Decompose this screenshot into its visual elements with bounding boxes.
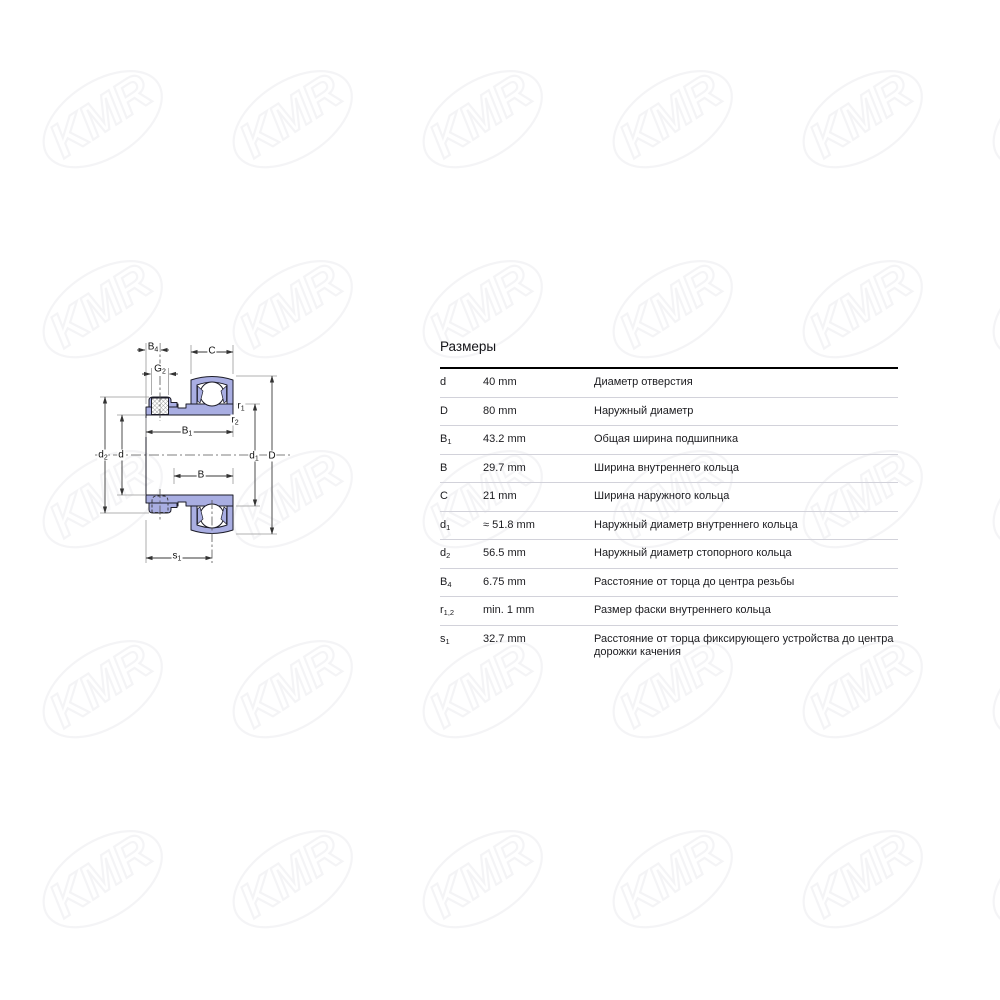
label-G2: G2 xyxy=(153,364,167,375)
dim-value: 40 mm xyxy=(483,376,594,390)
dim-symbol: B1 xyxy=(440,433,483,447)
ball-top xyxy=(200,382,224,406)
label-s1: s1 xyxy=(172,551,183,562)
dim-description: Ширина внутреннего кольца xyxy=(594,462,898,476)
dim-description: Наружный диаметр внутреннего кольца xyxy=(594,519,898,533)
table-row: d 40 mm Диаметр отверстия xyxy=(440,369,898,398)
dim-symbol: d1 xyxy=(440,519,483,533)
label-B4: B4 xyxy=(147,342,160,353)
dim-value: 56.5 mm xyxy=(483,547,594,561)
label-D: D xyxy=(267,451,276,462)
dimensions-section: Размеры d 40 mm Диаметр отверстия D 80 m… xyxy=(440,339,898,667)
label-d1: d1 xyxy=(248,451,259,462)
label-d: d xyxy=(117,450,125,461)
dim-value: 32.7 mm xyxy=(483,633,594,660)
dim-description: Размер фаски внутреннего кольца xyxy=(594,604,898,618)
table-row: D 80 mm Наружный диаметр xyxy=(440,398,898,427)
locking-collar-bottom xyxy=(149,503,177,513)
dim-description: Наружный диаметр xyxy=(594,405,898,419)
table-row: r1,2 min. 1 mm Размер фаски внутреннего … xyxy=(440,597,898,626)
dim-symbol: d2 xyxy=(440,547,483,561)
label-r1: r1 xyxy=(236,401,245,412)
dim-value: ≈ 51.8 mm xyxy=(483,519,594,533)
dim-description: Диаметр отверстия xyxy=(594,376,898,390)
dim-symbol: d xyxy=(440,376,483,390)
table-row: B1 43.2 mm Общая ширина подшипника xyxy=(440,426,898,455)
dim-symbol: r1,2 xyxy=(440,604,483,618)
dim-symbol: D xyxy=(440,405,483,419)
label-d2: d2 xyxy=(97,450,108,461)
label-B: B xyxy=(197,470,206,481)
table-row: d1 ≈ 51.8 mm Наружный диаметр внутреннег… xyxy=(440,512,898,541)
table-row: B4 6.75 mm Расстояние от торца до центра… xyxy=(440,569,898,598)
table-row: d2 56.5 mm Наружный диаметр стопорного к… xyxy=(440,540,898,569)
label-r2: r2 xyxy=(230,415,239,426)
dim-description: Общая ширина подшипника xyxy=(594,433,898,447)
dim-value: 6.75 mm xyxy=(483,576,594,590)
dim-value: 29.7 mm xyxy=(483,462,594,476)
dim-symbol: C xyxy=(440,490,483,504)
dim-value: 80 mm xyxy=(483,405,594,419)
dim-value: 21 mm xyxy=(483,490,594,504)
dim-description: Расстояние от торца до центра резьбы xyxy=(594,576,898,590)
table-row: s1 32.7 mm Расстояние от торца фиксирующ… xyxy=(440,626,898,667)
label-C: C xyxy=(207,346,216,357)
dim-symbol: B4 xyxy=(440,576,483,590)
dim-value: min. 1 mm xyxy=(483,604,594,618)
label-B1: B1 xyxy=(181,426,194,437)
table-row: C 21 mm Ширина наружного кольца xyxy=(440,483,898,512)
dim-description: Наружный диаметр стопорного кольца xyxy=(594,547,898,561)
dim-symbol: s1 xyxy=(440,633,483,660)
dimensions-table: d 40 mm Диаметр отверстия D 80 mm Наружн… xyxy=(440,367,898,667)
dim-description: Ширина наружного кольца xyxy=(594,490,898,504)
dim-value: 43.2 mm xyxy=(483,433,594,447)
dim-description: Расстояние от торца фиксирующего устройс… xyxy=(594,633,898,660)
dim-symbol: B xyxy=(440,462,483,476)
dimensions-title: Размеры xyxy=(440,339,898,355)
table-row: B 29.7 mm Ширина внутреннего кольца xyxy=(440,455,898,484)
